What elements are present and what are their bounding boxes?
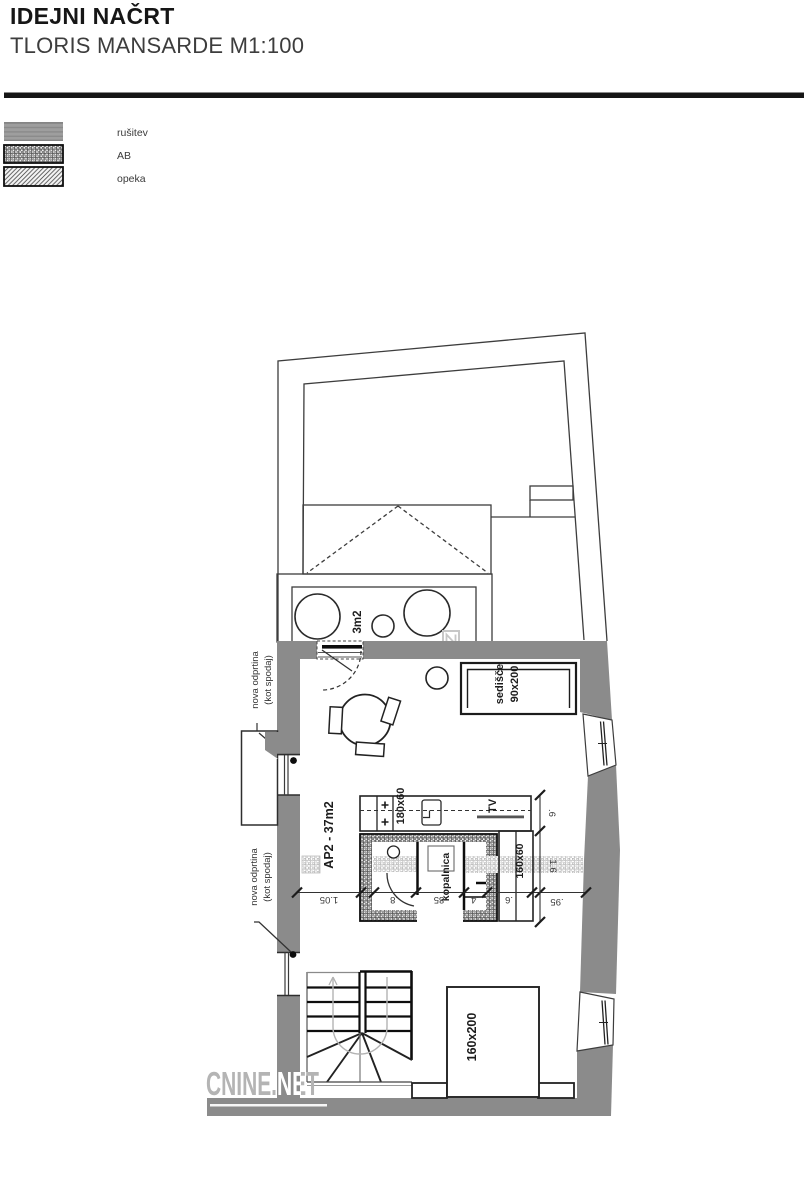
svg-text:.6: .6 <box>546 809 557 817</box>
svg-text:AB: AB <box>117 150 131 162</box>
svg-text:.95: .95 <box>550 896 563 907</box>
svg-text:1.6: 1.6 <box>547 859 558 872</box>
svg-text:TV: TV <box>487 798 499 813</box>
svg-text:.4: .4 <box>471 894 479 905</box>
svg-text:(kot spodaj): (kot spodaj) <box>263 655 274 705</box>
svg-text:IDEJNI NAČRT: IDEJNI NAČRT <box>10 2 175 29</box>
svg-text:CNINE.NET: CNINE.NET <box>206 1065 319 1102</box>
svg-text:TLORIS MANSARDE M1:100: TLORIS MANSARDE M1:100 <box>10 33 304 58</box>
svg-text:kopalnica: kopalnica <box>440 853 452 902</box>
svg-text:160x60: 160x60 <box>514 843 526 878</box>
svg-text:nova odprtina: nova odprtina <box>250 651 261 709</box>
svg-text:rušitev: rušitev <box>117 127 149 139</box>
svg-text:90x200: 90x200 <box>509 666 521 703</box>
svg-text:1.05: 1.05 <box>320 894 339 905</box>
svg-text:85: 85 <box>434 894 445 905</box>
svg-text:(kot spodaj): (kot spodaj) <box>262 852 273 902</box>
svg-text:AP2 - 37m2: AP2 - 37m2 <box>322 801 336 868</box>
svg-text:3m2: 3m2 <box>352 610 364 633</box>
svg-text:nova odprtina: nova odprtina <box>249 848 260 906</box>
svg-text:.6: .6 <box>505 894 513 905</box>
svg-text:.8: .8 <box>390 894 398 905</box>
svg-text:160x200: 160x200 <box>465 1013 479 1062</box>
svg-text:sedišče: sedišče <box>494 664 506 704</box>
svg-text:180x60: 180x60 <box>395 788 407 825</box>
svg-text:opeka: opeka <box>117 173 146 185</box>
